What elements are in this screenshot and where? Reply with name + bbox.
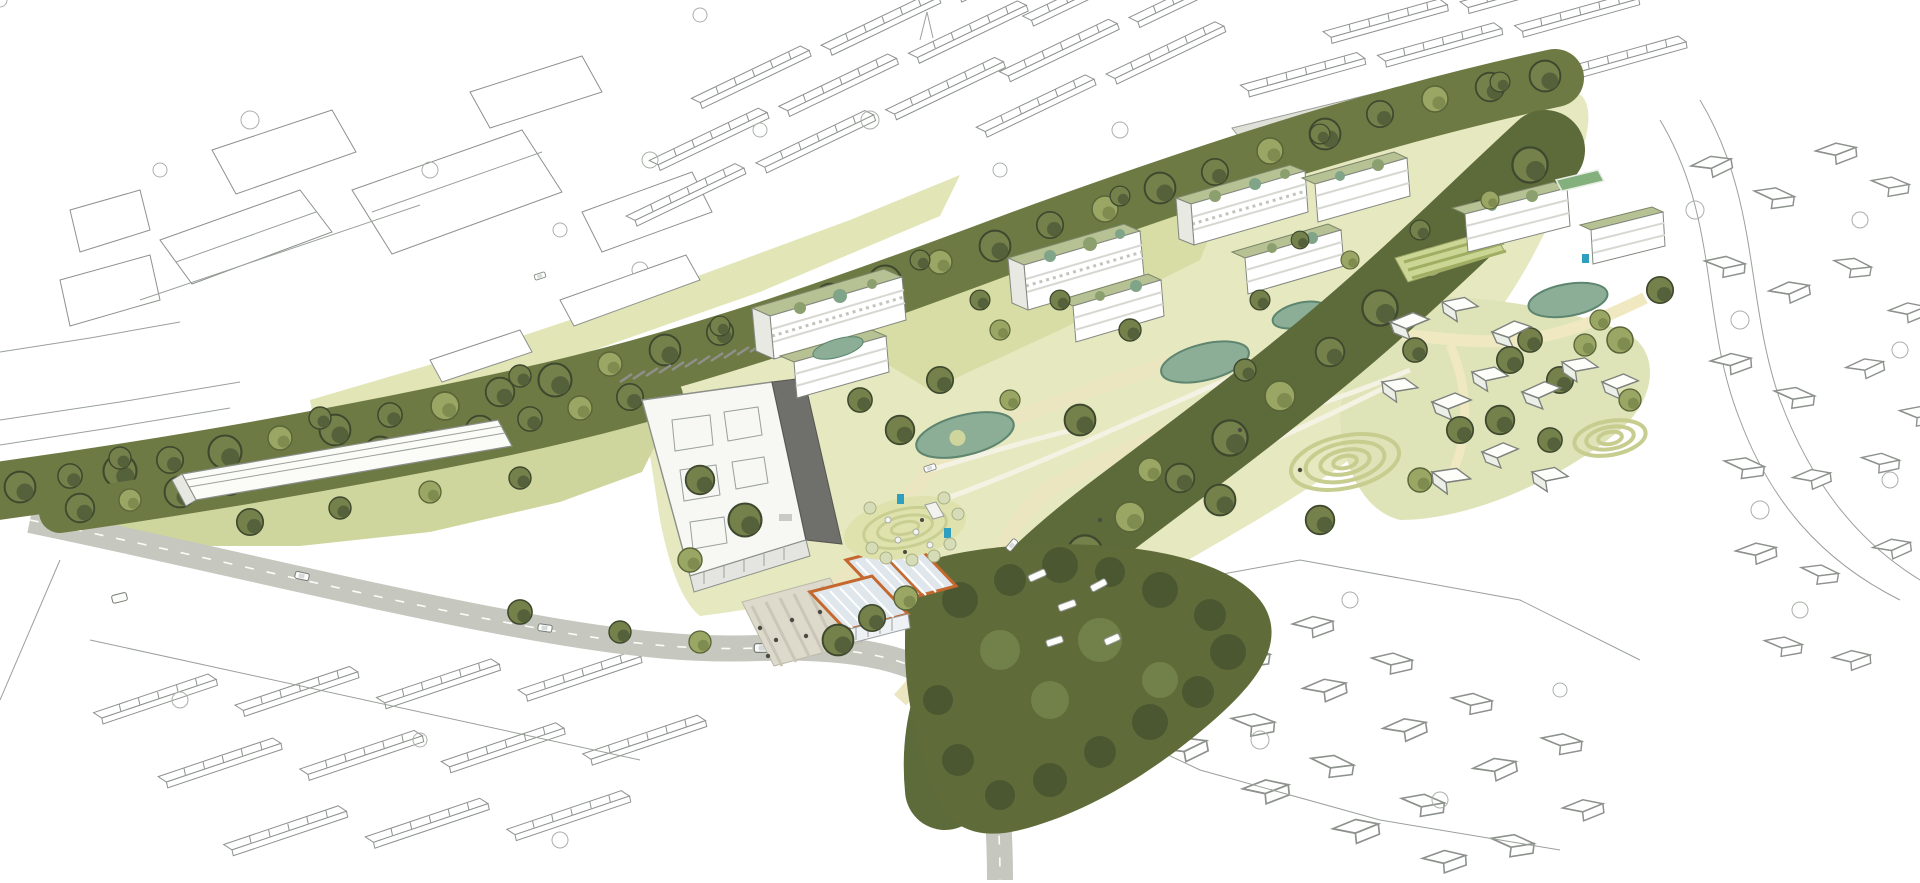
play-equipment-blue — [1582, 254, 1589, 263]
masterplan-illustration — [0, 0, 1920, 883]
play-equipment-blue — [944, 528, 951, 538]
core-sign — [779, 514, 792, 521]
masterplan-canvas — [0, 0, 1920, 883]
play-equipment-blue — [897, 494, 904, 504]
